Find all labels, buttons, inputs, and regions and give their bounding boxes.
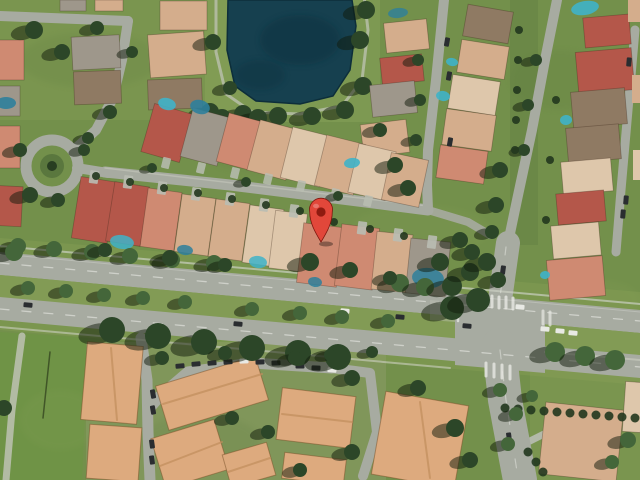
bush [515,26,523,34]
tree-canopy [490,272,506,288]
bush [540,407,549,416]
house-roof [633,150,640,180]
bush [366,225,374,233]
house-roof [566,124,622,163]
tree-canopy [485,225,499,239]
tree-canopy [99,317,125,343]
house-roof [457,39,510,79]
tree-canopy [293,306,307,320]
tree-canopy [324,349,336,361]
tree-canopy [218,258,232,272]
house-roof [384,19,430,53]
house-roof [148,31,207,78]
condo-roof [86,424,142,480]
tree-canopy [400,180,416,196]
house-roof [60,0,86,11]
car [626,57,632,66]
bush [579,410,588,419]
car [462,323,471,329]
tree-canopy [126,46,138,58]
pin-highlight [313,204,319,208]
bush [592,411,601,420]
tree-canopy [387,157,403,173]
tree-canopy [446,419,464,437]
car [540,326,549,332]
tree-canopy [223,81,237,95]
tree-canopy [526,390,538,402]
tree-canopy [381,314,395,328]
tree-canopy [431,253,449,271]
bush [542,216,550,224]
bush [546,156,554,164]
tree-canopy [147,163,157,173]
house-roof [575,48,634,95]
tree-canopy [178,295,192,309]
car [555,328,564,334]
tree-canopy [122,248,138,264]
house-roof [622,381,640,432]
bush [262,201,270,209]
bush [228,195,236,203]
house-roof [546,256,605,301]
bush [400,232,408,240]
bush [527,406,536,415]
bush [631,414,640,423]
tree-canopy [488,197,504,213]
tree-canopy [82,132,94,144]
house-roof [71,35,121,70]
tree-canopy [410,134,422,146]
tree-canopy [245,302,259,316]
tree-canopy [466,288,490,312]
tree-canopy [501,437,515,451]
house-roof [551,222,602,259]
house-roof [556,190,607,225]
bush [618,413,627,422]
bush [532,458,541,467]
tree-canopy [342,262,358,278]
car [191,361,200,367]
pond [235,60,285,90]
tree-canopy [478,253,496,271]
house-roof [571,88,628,129]
tree-canopy [145,323,171,349]
house-roof [632,75,640,103]
house-roof [95,0,123,11]
tree-canopy [13,143,27,157]
bush [553,408,562,417]
tree-canopy [136,291,150,305]
car [207,360,216,366]
tree-canopy [205,34,221,50]
tree-canopy [241,177,251,187]
tree-canopy [452,232,468,248]
tree-canopy [410,380,426,396]
tree-canopy [620,432,636,448]
bush [296,207,304,215]
tree-canopy [530,54,542,66]
tree-canopy [335,310,349,324]
satellite-map-canvas[interactable] [0,0,640,480]
tree-canopy [462,452,478,468]
tree-canopy [78,144,90,156]
bush [513,86,521,94]
tree-canopy [492,162,508,178]
tree-canopy [414,94,426,106]
tree-canopy [162,250,178,266]
tree-canopy [98,243,112,257]
pin-inner-dot [316,207,325,216]
house-roof [73,70,121,105]
car [620,209,626,218]
bush [512,116,520,124]
tree-canopy [509,407,523,421]
tree-canopy [218,346,232,360]
car [395,314,404,320]
tree-canopy [412,54,424,66]
tree-canopy [351,31,369,49]
bush [160,184,168,192]
tree-canopy [155,351,169,365]
tree-canopy [373,123,387,137]
driveway [357,221,368,235]
tree-canopy [518,144,530,156]
house-roof [583,14,631,48]
car [515,304,524,310]
tree-canopy [90,21,104,35]
tree-canopy [301,253,319,271]
pond [260,15,340,65]
bush [514,56,522,64]
car [175,363,184,369]
tree-canopy [46,241,62,257]
tree-canopy [239,335,265,361]
tree-canopy [336,101,354,119]
house-roof [160,1,207,30]
car [23,302,32,308]
bush [126,178,134,186]
house-roof [628,0,640,22]
tree-canopy [54,44,70,60]
tree-canopy [225,411,239,425]
tree-canopy [269,107,287,125]
bush [539,468,548,477]
street [0,16,128,21]
tree-canopy [21,281,35,295]
tree-canopy [97,288,111,302]
bush [194,189,202,197]
tree-canopy [25,21,43,39]
bush [92,172,100,180]
tree-canopy [493,383,507,397]
tree-canopy [288,351,302,365]
tree-canopy [383,271,397,285]
house-roof [448,74,501,115]
tree-canopy [357,1,375,19]
tree-canopy [344,444,360,460]
tree-canopy [5,243,23,261]
tree-canopy [522,99,534,111]
tree-canopy [59,284,73,298]
tree-canopy [22,187,38,203]
driveway [427,235,438,249]
tree-canopy [366,346,378,358]
house-roof [561,158,614,195]
tree-canopy [333,191,343,201]
bush [605,412,614,421]
tree-canopy [103,105,117,119]
tree-canopy [464,244,480,260]
tree-canopy [293,463,307,477]
house-roof [436,145,488,184]
bush [511,146,519,154]
tree-canopy [51,193,65,207]
tree-canopy [303,107,321,125]
bush [47,161,57,171]
car [233,321,242,327]
bush [552,96,560,104]
map-viewport [0,0,640,480]
tree-canopy [605,455,619,469]
tree-canopy [261,425,275,439]
car [568,330,577,336]
tree-canopy [344,370,360,386]
bush [524,448,533,457]
bush [566,409,575,418]
car [623,195,629,204]
house-roof [0,40,24,80]
tree-canopy [605,350,625,370]
